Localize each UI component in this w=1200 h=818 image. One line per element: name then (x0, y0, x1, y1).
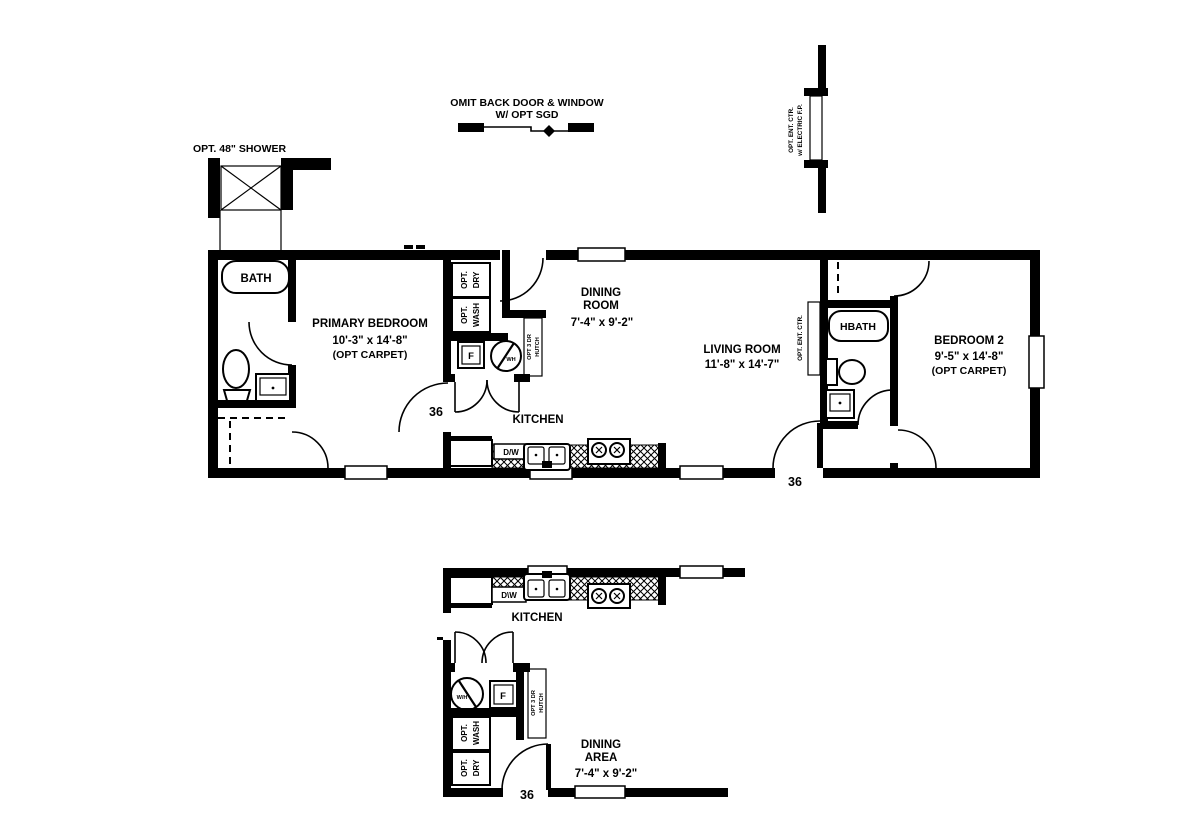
wall-segment (502, 250, 510, 312)
fridge-icon (450, 577, 492, 604)
door-arc (482, 632, 513, 663)
door-leaf (817, 423, 823, 468)
dishwasher-label: D/W (503, 448, 519, 457)
kitchen-label: KITCHEN (511, 612, 562, 624)
fireplace-note-line1: OPT. ENT. CTR. (788, 107, 795, 153)
wall-segment (658, 443, 666, 468)
floor-plan-drawing: OMIT BACK DOOR & WINDOW W/ OPT SGD OPT. … (0, 0, 1200, 818)
furnace-label: F (500, 691, 506, 702)
faucet-icon (542, 461, 552, 468)
wall-segment (820, 421, 858, 429)
wall-segment (567, 568, 680, 577)
hutch-label-line2: HUTCH (535, 337, 541, 357)
sgd-symbol-diamond-icon (543, 125, 555, 137)
hall-bath: HBATH (820, 250, 898, 429)
opt-ent-ctr-label: OPT. ENT. CTR. (797, 315, 804, 361)
washer-icon (452, 298, 490, 332)
door-arc (894, 261, 929, 296)
door-size-label: 36 (520, 788, 534, 802)
door-arc (455, 632, 486, 663)
room-name: BEDROOM 2 (934, 335, 1004, 347)
sgd-symbol-right-bar (568, 123, 594, 132)
wall-segment (218, 400, 296, 408)
wall-segment (625, 250, 1040, 260)
alt-layout: D\W KITCHEN W/H (437, 566, 745, 802)
sink-drain (556, 454, 559, 457)
bedroom-2: BEDROOM 2 9'-5" x 14'-8" (OPT CARPET) (890, 261, 1006, 471)
toilet-icon (839, 360, 865, 384)
wall-segment (443, 568, 528, 577)
door-leaf (546, 744, 551, 790)
window (575, 786, 625, 798)
wall-segment (658, 577, 666, 605)
wall-segment (208, 158, 220, 218)
room-note: (OPT CARPET) (333, 349, 408, 361)
room-note: (OPT CARPET) (932, 365, 1007, 377)
opt-wash-label-line1: OPT. (460, 306, 469, 324)
annotation-opt-shower: OPT. 48" SHOWER (193, 143, 331, 250)
wall-segment (288, 250, 296, 322)
omit-back-door-text-line2: W/ OPT SGD (496, 109, 559, 121)
furnace-label: F (468, 351, 474, 362)
sink-drain (272, 387, 275, 390)
opt-wash-label-line1: OPT. (460, 724, 469, 742)
door-arc (249, 322, 292, 365)
window (1029, 336, 1044, 388)
wall-segment (514, 374, 530, 382)
main-floor-plan: BATH PRIMARY BEDROOM 10'-3" x 14'-8" (OP… (208, 245, 1044, 489)
fridge-icon (450, 440, 492, 466)
washer-icon (452, 717, 490, 750)
primary-bath: BATH (218, 250, 296, 408)
room-name-line2: AREA (585, 752, 618, 764)
water-heater-label: WH (506, 357, 515, 363)
wall-cap (804, 88, 828, 96)
window (578, 248, 625, 261)
wall-segment (818, 165, 826, 213)
wall-segment (890, 463, 898, 471)
wall-segment (625, 788, 728, 797)
door-arc (898, 430, 936, 468)
window (680, 466, 723, 479)
room-name: LIVING ROOM (703, 344, 780, 356)
window (680, 566, 723, 578)
kitchen: KITCHEN D/W (450, 414, 666, 470)
wall-segment (208, 250, 218, 478)
wall-segment (723, 468, 775, 478)
wall-segment (502, 310, 546, 318)
sink-drain (839, 402, 842, 405)
water-heater-label: W/H (457, 695, 468, 701)
door-size-label: 36 (788, 475, 802, 489)
wall-segment (818, 45, 826, 93)
wall-segment (820, 300, 898, 308)
wall-segment (281, 158, 293, 210)
omit-back-door-text-line1: OMIT BACK DOOR & WINDOW (450, 97, 603, 109)
opt-dry-label-line1: OPT. (460, 759, 469, 777)
toilet-tank (826, 359, 837, 385)
wall-segment (443, 708, 524, 717)
alt-kitchen: D\W KITCHEN (443, 566, 745, 624)
opt-dry-label-line2: DRY (472, 759, 481, 776)
opt-dry-label-line1: OPT. (460, 271, 469, 289)
door-arc (773, 421, 820, 468)
wall-segment (443, 788, 503, 797)
hutch-label-line1: OPT 3 DR (531, 690, 537, 716)
room-dims: 7'-4" x 9'-2" (575, 768, 637, 780)
ent-ctr-recess (810, 96, 822, 160)
kitchen-label: KITCHEN (512, 414, 563, 426)
ent-ctr-outline (808, 302, 820, 375)
wall-segment (208, 468, 345, 478)
wall-tick-mark (404, 245, 413, 249)
annotation-omit-back-door: OMIT BACK DOOR & WINDOW W/ OPT SGD (450, 97, 603, 137)
wall-segment (548, 788, 575, 797)
sink-drain (535, 454, 538, 457)
room-dims: 9'-5" x 14'-8" (935, 351, 1004, 363)
room-dims: 7'-4" x 9'-2" (571, 317, 633, 329)
opt-wash-label-line2: WASH (472, 303, 481, 327)
room-dims: 10'-3" x 14'-8" (332, 335, 407, 347)
wall-segment (443, 250, 451, 382)
wall-segment (723, 568, 745, 577)
wall-tick-mark (416, 245, 425, 249)
living-room: LIVING ROOM 11'-8" x 14'-7" OPT. ENT. CT… (703, 302, 823, 489)
primary-bedroom: PRIMARY BEDROOM 10'-3" x 14'-8" (OPT CAR… (312, 250, 451, 468)
dining-room: DINING ROOM 7'-4" x 9'-2" (571, 287, 633, 329)
wall-tick-mark (437, 637, 443, 640)
dryer-icon (452, 263, 490, 297)
room-name-line2: ROOM (583, 300, 619, 312)
wall-segment (890, 296, 898, 426)
opt-dry-label-line2: DRY (472, 271, 481, 288)
door-arc (455, 380, 487, 412)
wall-segment (208, 250, 500, 260)
bath-label: BATH (240, 273, 271, 285)
floor-plan-page: OMIT BACK DOOR & WINDOW W/ OPT SGD OPT. … (0, 0, 1200, 818)
door-arc (858, 390, 893, 425)
toilet-icon (223, 350, 249, 388)
wall-segment (443, 663, 455, 672)
wall-segment (546, 250, 578, 260)
hutch-label-line1: OPT 3 DR (527, 334, 533, 360)
dishwasher-label: D\W (501, 591, 517, 600)
opt-wash-label-line2: WASH (472, 721, 481, 745)
wall-segment (387, 468, 530, 478)
wall-segment (823, 468, 1040, 478)
primary-closet (218, 418, 328, 468)
opt-shower-label: OPT. 48" SHOWER (193, 143, 286, 155)
wall-segment (443, 374, 455, 382)
fireplace-note-line2: w/ ELECTRIC F.P. (797, 104, 804, 157)
hutch-label-line2: HUTCH (539, 693, 545, 713)
sgd-symbol-left-bar (458, 123, 484, 132)
sink-drain (535, 588, 538, 591)
room-name-line1: DINING (581, 287, 621, 299)
room-dims: 11'-8" x 14'-7" (705, 359, 780, 371)
utility-area: OPT. DRY OPT. WASH F WH OPT 3 DR HUTCH (443, 250, 546, 412)
sgd-symbol-track (484, 127, 568, 131)
dryer-icon (452, 752, 490, 785)
door-arc (502, 744, 548, 790)
annotation-opt-ent-ctr-fireplace: OPT. ENT. CTR. w/ ELECTRIC F.P. (788, 45, 828, 213)
wall-cap (804, 160, 828, 168)
counter-edge (450, 604, 492, 608)
room-name-line1: DINING (581, 739, 621, 751)
sink-drain (556, 588, 559, 591)
hbath-label: HBATH (840, 321, 876, 333)
door-arc (292, 432, 328, 468)
door-size-label: 36 (429, 405, 443, 419)
alt-utility: W/H F OPT 3 DR HUTCH OPT. WASH OPT. DRY (437, 632, 546, 795)
wall-segment (516, 663, 524, 740)
wall-segment (572, 468, 680, 478)
wall-segment (443, 333, 508, 341)
room-name: PRIMARY BEDROOM (312, 318, 428, 330)
faucet-icon (542, 571, 552, 578)
door-arc (487, 380, 519, 412)
window (345, 466, 387, 479)
